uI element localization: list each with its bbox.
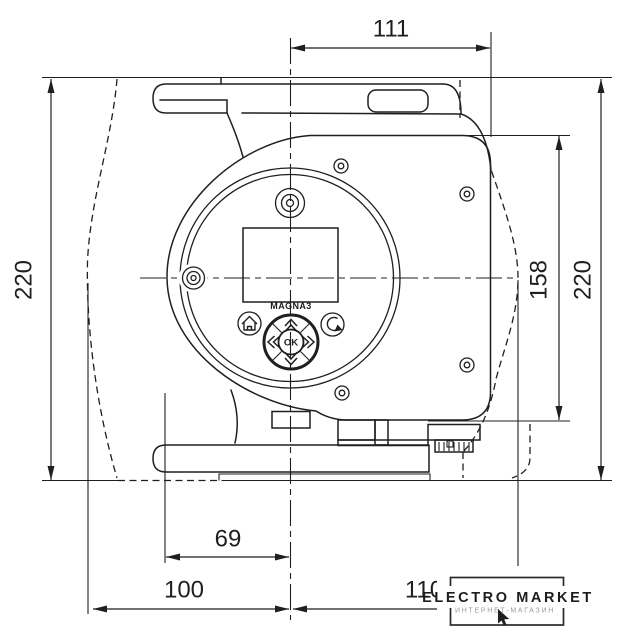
pump-dimension-drawing: MAGNA3 OK [0, 0, 631, 640]
watermark-logo: ELECTRO MARKET ИНТЕРНЕТ-МАГАЗИН [422, 568, 631, 638]
back-button [321, 313, 344, 336]
pump-body-outline [153, 78, 491, 481]
dim-220-left: 220 [10, 79, 54, 480]
brand-model-label: MAGNA3 [270, 301, 311, 311]
home-icon [242, 317, 257, 331]
center-lines [140, 38, 517, 620]
store-name-label: ELECTRO MARKET [422, 590, 594, 606]
dim-220-right-label: 220 [569, 260, 596, 300]
dim-69-bottom: 69 [166, 525, 289, 560]
dim-69-label: 69 [215, 525, 242, 552]
store-tagline-label: ИНТЕРНЕТ-МАГАЗИН [455, 608, 555, 615]
screw-right-bottom [460, 358, 474, 372]
dim-100-bottom: 100 [93, 576, 289, 612]
screw-bottom [335, 386, 349, 400]
dim-111-label: 111 [373, 15, 409, 42]
terminal-ribs [439, 442, 469, 451]
back-arrow-icon [327, 317, 342, 331]
ok-label: OK [284, 338, 298, 349]
dim-100-label: 100 [164, 576, 204, 603]
dim-158-label: 158 [525, 260, 552, 300]
home-button [238, 312, 261, 335]
dim-158-right: 158 [525, 136, 562, 420]
dim-220-left-label: 220 [10, 260, 37, 300]
dim-220-right: 220 [569, 79, 604, 480]
dim-110-bottom: 110 [293, 576, 443, 612]
dim-111-top: 111 [291, 15, 490, 51]
screw-top [334, 159, 348, 173]
screw-right-top [460, 187, 474, 201]
